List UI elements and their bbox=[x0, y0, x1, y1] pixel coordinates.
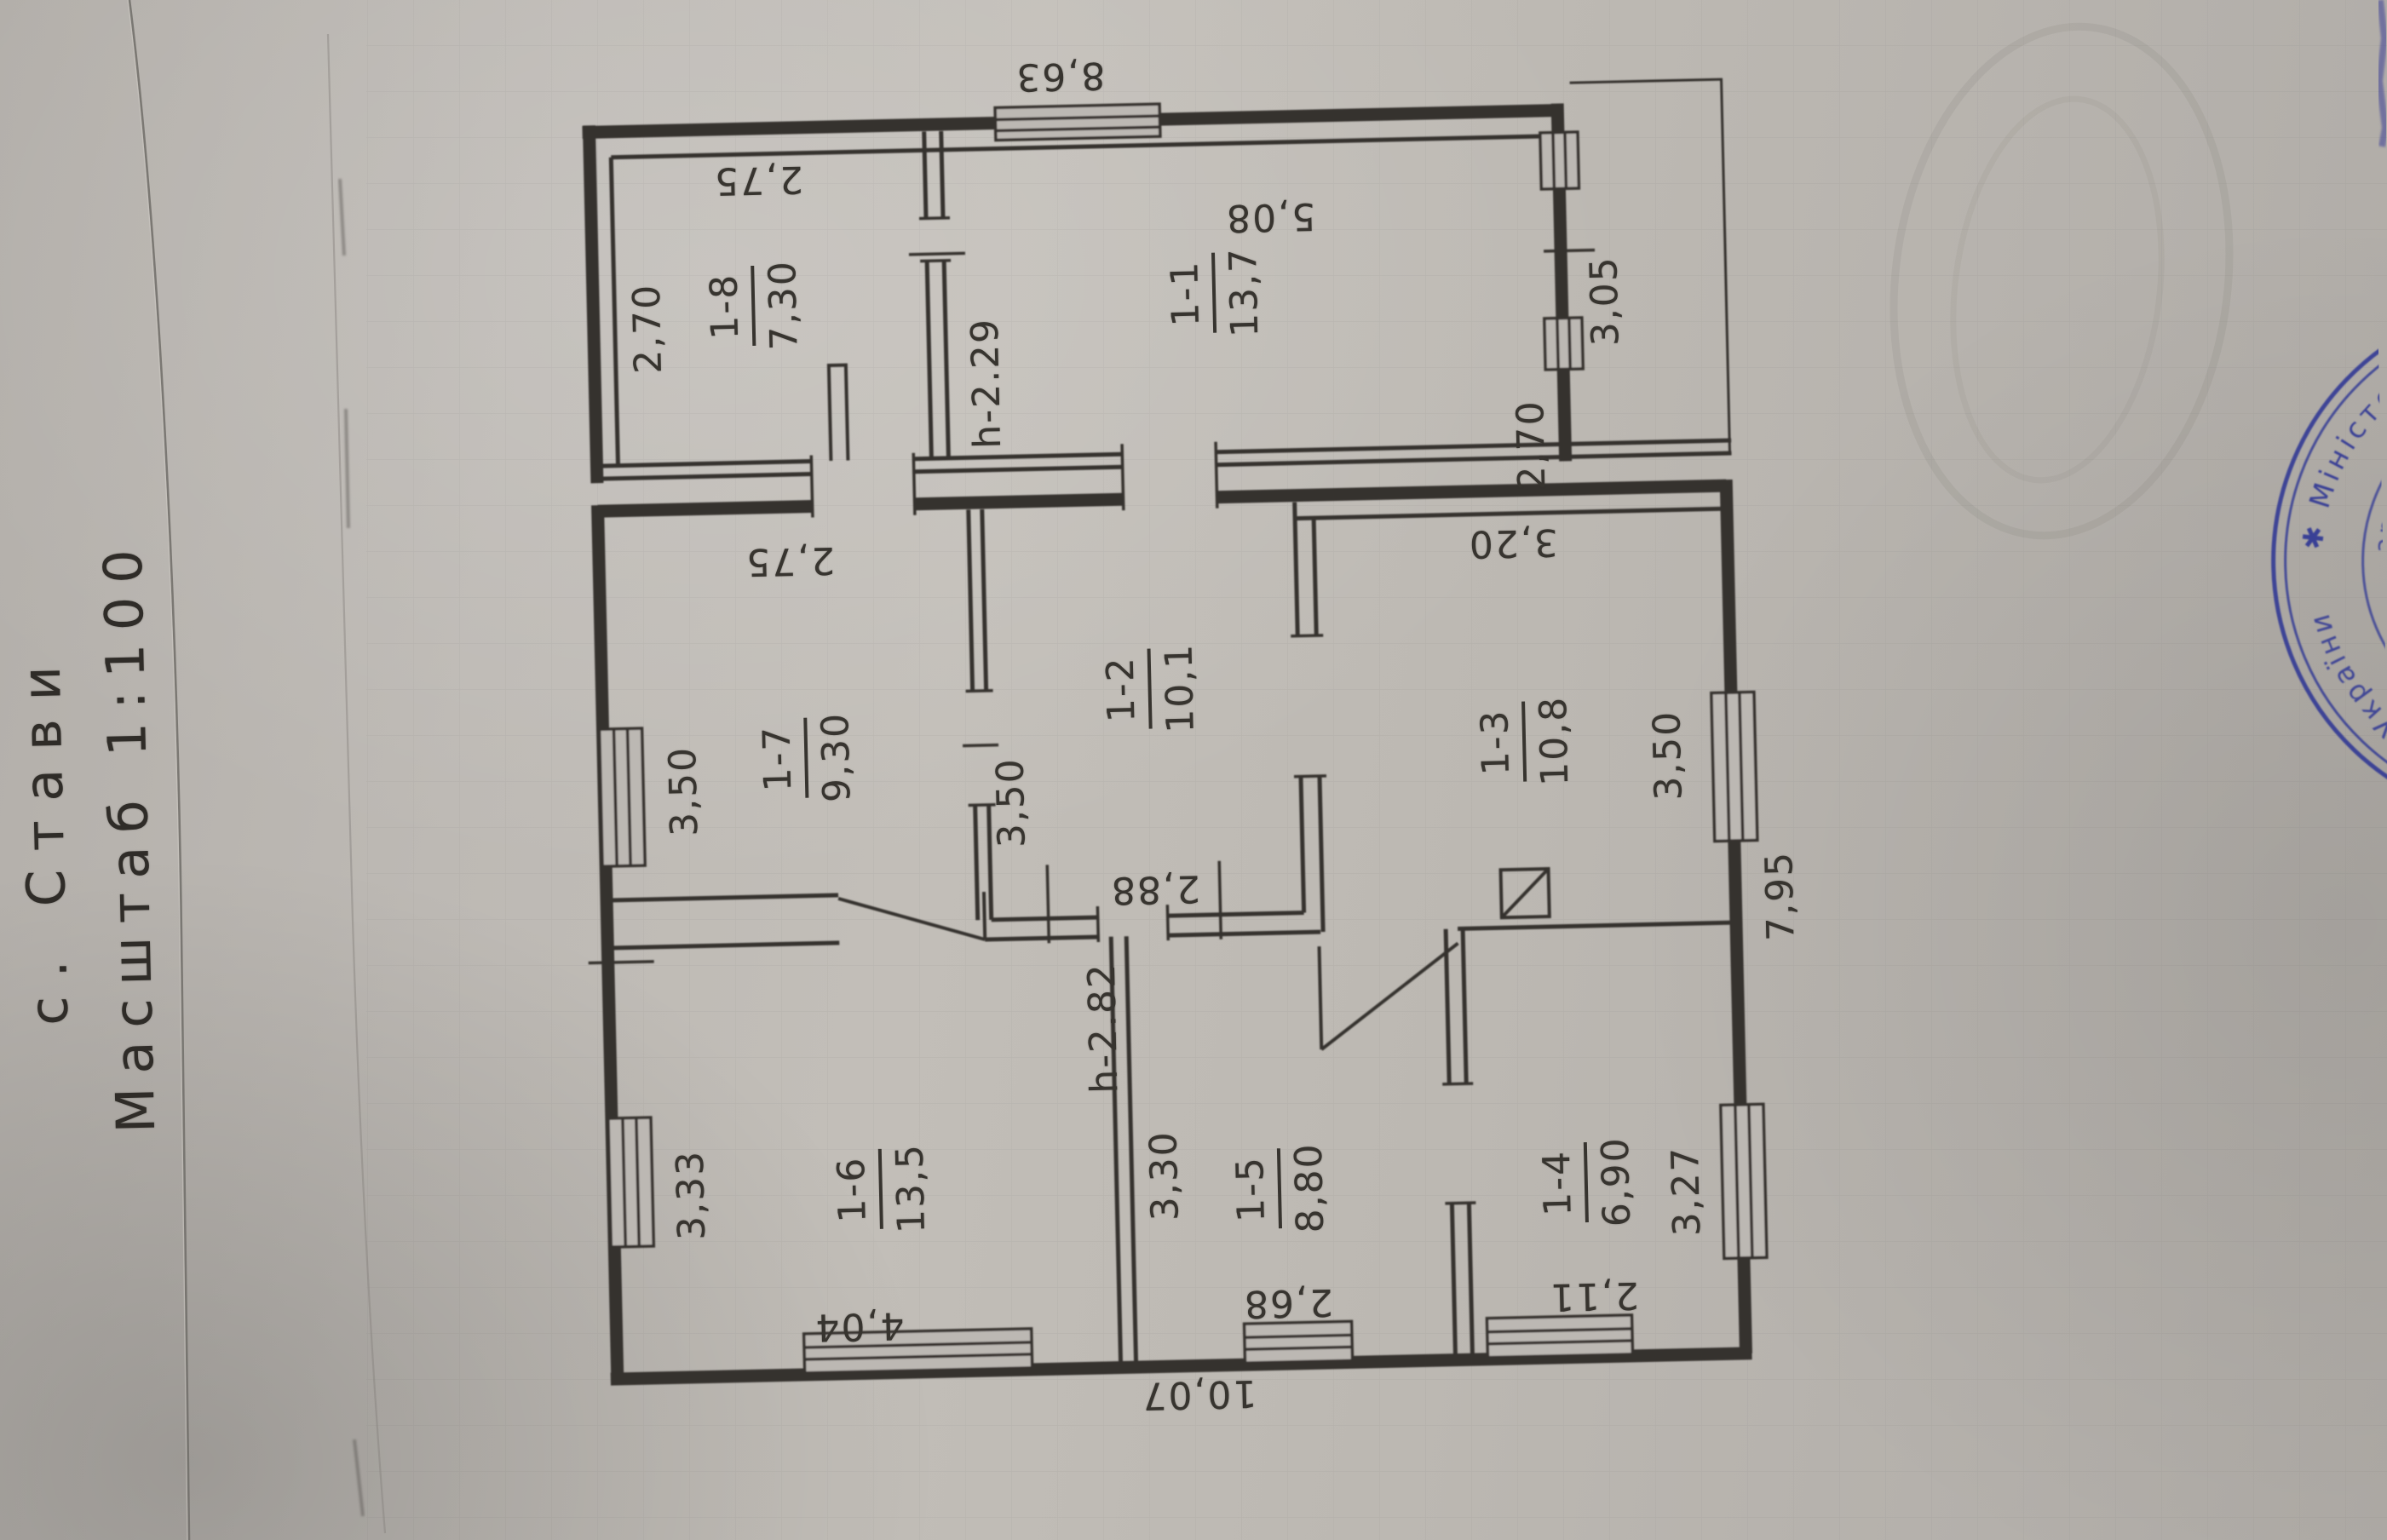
dim-3-30: 3,30 bbox=[1145, 1130, 1184, 1221]
dim-2-68: 2,68 bbox=[1243, 1283, 1334, 1322]
dim-2-11: 2,11 bbox=[1548, 1276, 1639, 1315]
room-label-1-3: 1-310,8 bbox=[1473, 695, 1577, 788]
floor-plan-scene: ✱ Міністерство ва України архітектурно-б… bbox=[0, 0, 2387, 1540]
room-area: 13,7 bbox=[1215, 246, 1267, 337]
room-number: 1-3 bbox=[1473, 702, 1527, 783]
room-area: 13,5 bbox=[882, 1143, 934, 1234]
dim-2-70-r1: 2,70 bbox=[1512, 399, 1551, 491]
dim-10-07: 10,07 bbox=[1141, 1374, 1257, 1414]
room-number: 1-4 bbox=[1535, 1142, 1589, 1223]
floor-plan-drawing: ✱ Міністерство ва України архітектурно-б… bbox=[0, 0, 2387, 1540]
dim-3-50-r2: 3,50 bbox=[992, 757, 1031, 848]
dim-2-70-r8: 2,70 bbox=[629, 283, 668, 374]
room-number: 1-6 bbox=[830, 1149, 883, 1230]
room-number: 1-1 bbox=[1163, 253, 1217, 334]
room-area: 10,8 bbox=[1525, 695, 1577, 786]
dim-3-50-r7: 3,50 bbox=[664, 746, 704, 837]
room-area: 8,80 bbox=[1280, 1142, 1332, 1233]
dim-4-04: 4,04 bbox=[814, 1306, 905, 1345]
room-number: 1-5 bbox=[1228, 1148, 1282, 1229]
dim-3-05: 3,05 bbox=[1585, 256, 1625, 347]
room-number: 1-2 bbox=[1099, 649, 1153, 730]
room-area: 10,1 bbox=[1150, 642, 1202, 733]
stamp-outer-ring-2 bbox=[2280, 306, 2387, 816]
room-number: 1-7 bbox=[755, 718, 808, 799]
dim-3-20: 3,20 bbox=[1467, 523, 1558, 562]
wall-stub bbox=[829, 365, 848, 461]
dim-8-63: 8,63 bbox=[1015, 56, 1106, 95]
room-area: 6,90 bbox=[1587, 1136, 1639, 1227]
room-label-1-6: 1-613,5 bbox=[830, 1143, 934, 1236]
room-label-1-8: 1-87,30 bbox=[702, 260, 806, 353]
room-area: 7,30 bbox=[754, 260, 806, 351]
room-label-1-1: 1-113,7 bbox=[1163, 246, 1267, 339]
page-title: с. Стави Масштаб 1:100 bbox=[5, 451, 169, 1221]
dim-3-50-r3: 3,50 bbox=[1648, 710, 1688, 801]
stove-symbol bbox=[1501, 869, 1550, 917]
round-stamp: ✱ Міністерство ва України архітектурно-б… bbox=[2268, 294, 2387, 829]
dim-2-75-r8: 2,75 bbox=[712, 160, 803, 199]
height-note-annex: h-2.29 bbox=[967, 317, 1007, 449]
dim-3-27: 3,27 bbox=[1667, 1146, 1706, 1237]
room-label-1-7: 1-79,30 bbox=[755, 711, 859, 804]
scanned-floor-plan-page: ✱ Міністерство ва України архітектурно-б… bbox=[0, 0, 2387, 1540]
room-number: 1-8 bbox=[702, 266, 756, 347]
dim-5-08: 5,08 bbox=[1225, 197, 1316, 236]
room-label-1-4: 1-46,90 bbox=[1535, 1136, 1639, 1229]
dim-2-88: 2,88 bbox=[1109, 869, 1200, 908]
room-area: 9,30 bbox=[807, 711, 859, 802]
dim-2-75-r7: 2,75 bbox=[745, 541, 836, 580]
room-label-1-2: 1-210,1 bbox=[1098, 642, 1202, 735]
dim-7-95: 7,95 bbox=[1761, 850, 1800, 941]
room-label-1-5: 1-58,80 bbox=[1228, 1142, 1332, 1235]
dim-3-33: 3,33 bbox=[672, 1149, 711, 1240]
height-note-main: h-2.82 bbox=[1084, 962, 1124, 1095]
